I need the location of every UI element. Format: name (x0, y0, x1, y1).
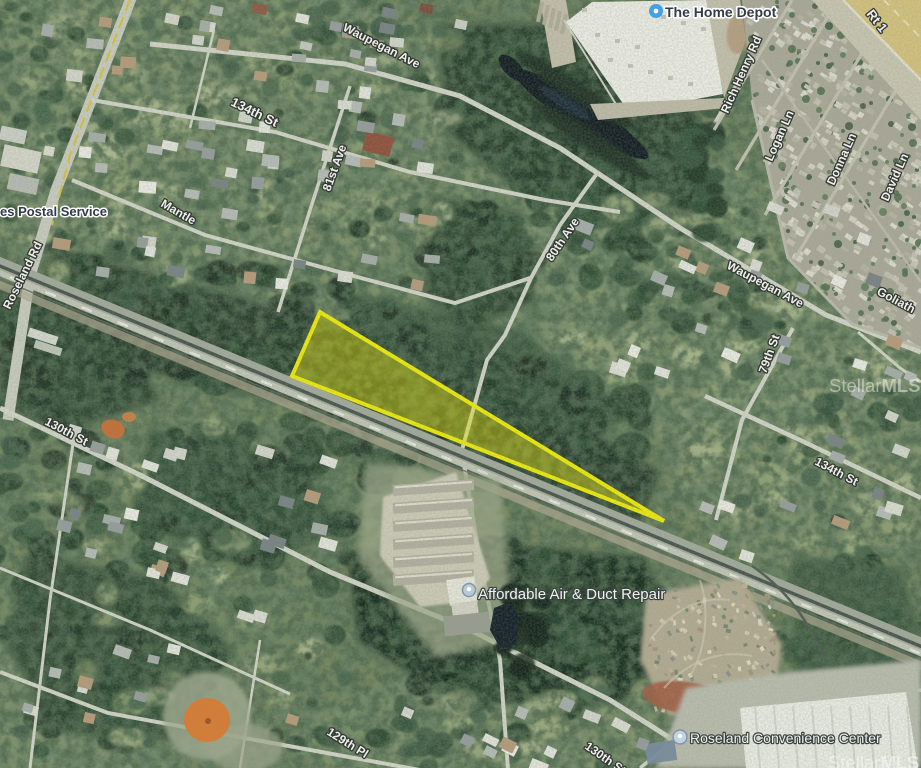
svg-text:es Postal Service: es Postal Service (0, 204, 107, 219)
svg-text:StellarMLS: StellarMLS (829, 375, 921, 396)
svg-text:StellarMLS: StellarMLS (828, 752, 920, 768)
svg-text:The Home Depot: The Home Depot (665, 4, 777, 20)
svg-text:Affordable Air & Duct Repair: Affordable Air & Duct Repair (478, 586, 665, 603)
svg-text:Roseland Convenience Center: Roseland Convenience Center (690, 730, 881, 746)
